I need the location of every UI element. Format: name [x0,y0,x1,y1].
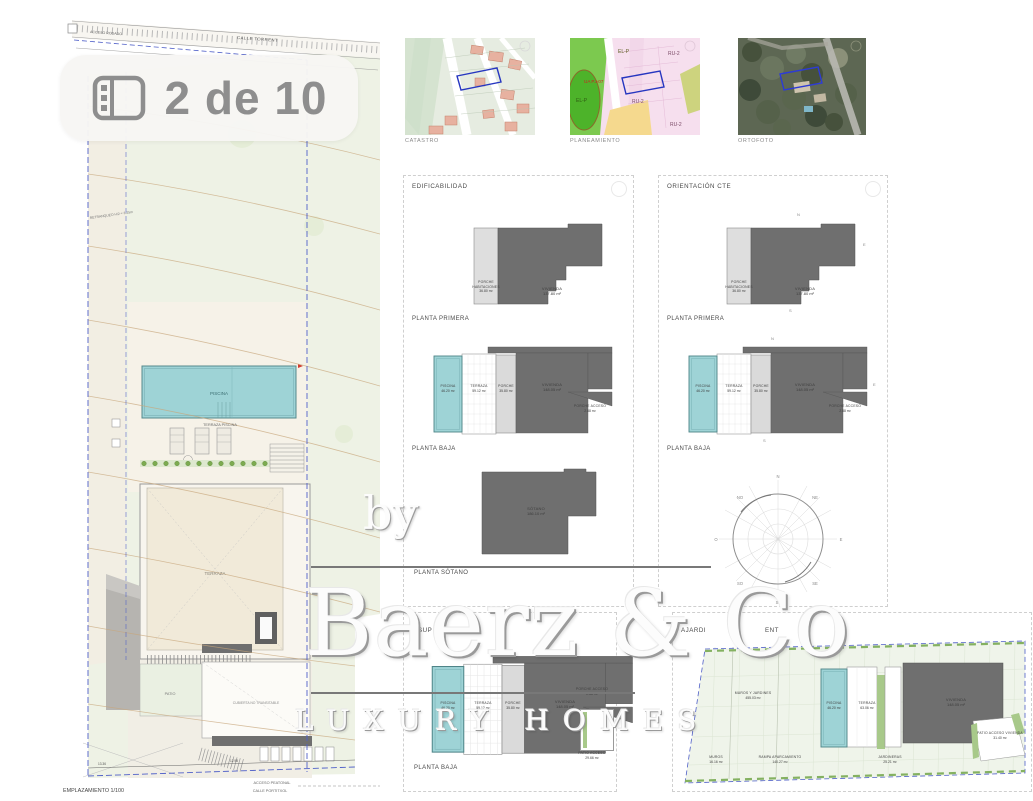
superficies-panel: SUP N PISCINA 46.20 m² TE [403,612,617,792]
edif-planta-primera-label: PLANTA PRIMERA [412,316,469,322]
compass-ne: NE [812,495,818,500]
garden-sliver [583,712,587,748]
compass-e: E [840,537,843,542]
zone-elp-left: EL-P [576,98,588,104]
edif-planta-primera-plan [468,218,618,314]
zone-ua: UA PJ-07 [584,79,604,84]
area-label-terraza-pb: TERRAZA 59.12 m² [719,384,749,394]
catastro-map [405,38,535,135]
area-label-patio-acceso-aj: PATIO ACCESO VIVIENDA 31.40 m² [971,731,1029,741]
catastro-caption: CATASTRO [405,138,439,144]
compass-no: NO [737,495,744,500]
pool-label: PISCINA [210,391,228,396]
ajardinamiento-title-frag2: ENT [765,627,779,634]
dir-s: S [789,308,792,313]
area-label-porche-pb: PORCHE 35.80 m² [492,384,520,394]
gallery-count-label: 2 de 10 [165,71,328,125]
terrace-label: TERRAZA [204,571,225,576]
zone-ru2-b: RU-2 [632,99,644,105]
orient-planta-primera-label: PLANTA PRIMERA [667,316,724,322]
compass-se: SE [812,581,818,586]
area-label-porche-pb: PORCHE 35.80 m² [499,701,527,711]
catastro-map-image [405,38,535,135]
ortofoto-map-image [738,38,866,135]
dim-right: 12.98 [230,759,238,763]
access-bottom-label: ACCESO PEATONAL [254,781,291,785]
area-label-vivienda-p1: VIVIENDA 137.80 m² [530,286,574,297]
planeamiento-map: EL-P RU-2 UA PJ-07 EL-P RU-2 RU-2 [570,38,700,135]
north-arrow-icon [865,181,881,197]
roof-label: CUBIERTA NO TRANSITABLE [233,701,280,705]
ajardinamiento-title-frag1: AJARDI [681,627,706,634]
sup-planta-baja-label: PLANTA BAJA [414,765,458,771]
compass-n: N [776,474,779,479]
area-label-porche-habitaciones: PORCHE HABITACIONES 36.80 m² [719,280,759,294]
area-label-piscina-pb: PISCINA 46.20 m² [434,384,462,394]
zone-ru2-a: RU-2 [668,51,680,57]
edif-planta-sotano-label: PLANTA SÓTANO [414,570,468,576]
patio-label: PATIO [165,692,176,696]
orientacion-panel: ORIENTACIÓN CTE N E S PORCHE HABITACIONE… [658,175,888,607]
area-label-piscina-aj: PISCINA 46.20 m² [819,701,849,711]
area-label-muros: MUROS 16.16 m² [699,755,733,765]
area-label-porche-habitaciones: PORCHE HABITACIONES 36.80 m² [466,280,506,294]
area-label-muros-jardines: MUROS Y JARDINES 455.03 m² [723,691,783,701]
street-bottom-label: CALLE PORTITXOL [253,789,288,793]
area-label-vivienda-aj: VIVIENDA 148.05 m² [933,697,979,708]
area-label-piscina-pb: PISCINA 46.20 m² [434,701,462,711]
area-label-vivienda-p1: VIVIENDA 137.80 m² [783,286,827,297]
zone-elp-top: EL-P [618,49,630,55]
area-label-porche-acceso: PORCHE ACCESO 2.88 m² [566,404,614,414]
area-label-terraza-pb: TERRAZA 59.12 m² [468,701,498,711]
edif-planta-baja-label: PLANTA BAJA [412,446,456,452]
area-label-piscina-pb: PISCINA 46.20 m² [689,384,717,394]
area-label-rampa: RAMPA APARCAMIENTO 140.27 m² [745,755,815,765]
dir-e: E [863,242,866,247]
ortofoto-map [738,38,866,135]
compass-rose: N NE E SE S SO O NO [711,472,846,607]
gallery-count-badge[interactable]: 2 de 10 [60,55,358,141]
orient-planta-primera-plan [721,218,871,314]
plan-sheet-page: ACCESO RODADO CALLE TORRENT RETRANQUEO H… [0,0,1033,801]
ajardinamiento-panel: AJARDI ENT [672,612,1032,792]
area-label-porche-pb: PORCHE 35.80 m² [747,384,775,394]
dir-s: S [763,438,766,443]
area-label-vivienda-pb: VIVIENDA 148.05 m² [532,382,572,393]
zone-ru2-c: RU-2 [670,122,682,128]
planeamiento-map-image: EL-P RU-2 UA PJ-07 EL-P RU-2 RU-2 [570,38,700,135]
area-label-terraza-aj: TERRAZA 63.06 m² [851,701,883,711]
area-label-patio-acceso-sup: PATIO ACCESO 29.66 m² [568,751,616,761]
ajardinamiento-plan [675,637,1027,789]
dim-left: 13.36 [98,762,106,766]
edificabilidad-panel: EDIFICABILIDAD PORCHE HABITACIONES 36.80… [403,175,634,607]
dir-n: N [771,336,774,341]
site-plan-title: EMPLAZAMIENTO 1/100 [63,788,124,794]
area-label-sotano: SÓTANO 186.10 m² [512,506,560,517]
area-label-porche-acceso: PORCHE ACCESO 2.88 m² [821,404,869,414]
area-label-vivienda-pb: VIVIENDA 148.05 m² [545,699,585,710]
orientacion-title: ORIENTACIÓN CTE [667,183,731,190]
gallery-icon [91,74,147,122]
pool-terrace-label: TERRAZA PISCINA [203,423,237,427]
area-label-terraza-pb: TERRAZA 59.12 m² [464,384,494,394]
area-label-porche-acceso: PORCHE ACCESO 2.88 m² [568,687,616,697]
dir-e: E [873,382,876,387]
north-arrow-icon [611,181,627,197]
ortofoto-caption: ORTOFOTO [738,138,774,144]
dir-n: N [797,212,800,217]
planeamiento-caption: PLANEAMIENTO [570,138,620,144]
sup-patio-shape [580,709,614,751]
superficies-title-frag2: N [454,627,459,634]
area-label-vivienda-pb: VIVIENDA 148.05 m² [785,382,825,393]
superficies-title-frag1: SUP [418,627,432,634]
compass-so: SO [737,581,744,586]
compass-o: O [714,537,718,542]
orient-planta-baja-label: PLANTA BAJA [667,446,711,452]
edificabilidad-title: EDIFICABILIDAD [412,183,467,190]
compass-s: S [776,600,779,605]
area-label-jardineras: JARDINERAS 25.21 m² [865,755,915,765]
